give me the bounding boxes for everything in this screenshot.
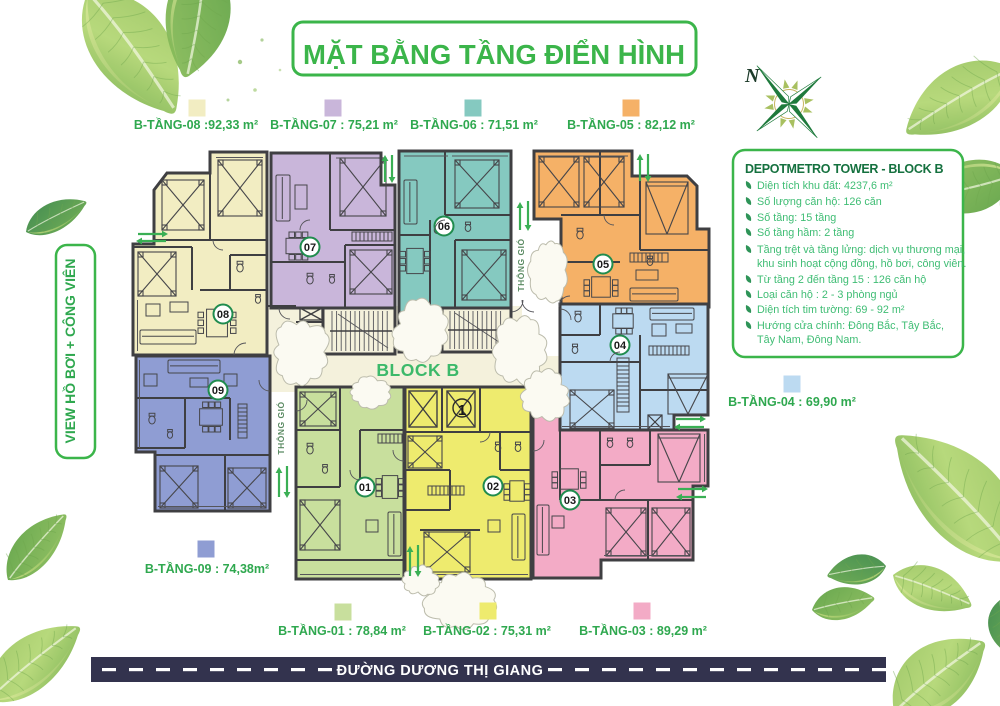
svg-text:DEPOTMETRO TOWER - BLOCK B: DEPOTMETRO TOWER - BLOCK B [745, 162, 943, 176]
svg-text:khu sinh hoạt cộng đồng, hồ bơ: khu sinh hoạt cộng đồng, hồ bơi, công vi… [757, 258, 966, 270]
svg-text:1: 1 [458, 402, 466, 419]
svg-text:B-TẦNG-08 :92,33 m²: B-TẦNG-08 :92,33 m² [134, 117, 258, 132]
svg-text:Tầng trệt và tầng lửng: dịch v: Tầng trệt và tầng lửng: dịch vụ thương m… [757, 244, 965, 256]
svg-text:B-TẦNG-04 : 69,90 m²: B-TẦNG-04 : 69,90 m² [728, 394, 856, 409]
svg-text:Diện tích khu đất: 4237,6 m²: Diện tích khu đất: 4237,6 m² [757, 180, 893, 192]
svg-text:B-TẦNG-05 : 82,12 m²: B-TẦNG-05 : 82,12 m² [567, 117, 695, 132]
svg-text:Từ tầng 2 đến tầng 15 : 126 că: Từ tầng 2 đến tầng 15 : 126 căn hộ [757, 274, 926, 286]
svg-text:02: 02 [487, 481, 499, 493]
svg-text:Hướng cửa chính: Đông Bắc, Tây: Hướng cửa chính: Đông Bắc, Tây Bắc, [757, 319, 944, 332]
svg-text:09: 09 [212, 385, 224, 397]
svg-text:04: 04 [614, 340, 627, 352]
svg-text:01: 01 [359, 482, 371, 494]
svg-text:07: 07 [304, 242, 316, 254]
svg-text:THÔNG GIÓ: THÔNG GIÓ [515, 238, 526, 291]
svg-text:BLOCK B: BLOCK B [376, 360, 459, 380]
svg-text:Tây Nam, Đông Nam.: Tây Nam, Đông Nam. [757, 334, 861, 346]
svg-text:Diện tích tim tường: 69 - 92 m: Diện tích tim tường: 69 - 92 m² [757, 304, 905, 316]
svg-text:MẶT BẰNG TẦNG ĐIỂN HÌNH: MẶT BẰNG TẦNG ĐIỂN HÌNH [303, 39, 685, 70]
svg-text:B-TẦNG-02 : 75,31 m²: B-TẦNG-02 : 75,31 m² [423, 623, 551, 638]
svg-text:Số tầng hầm: 2 tầng: Số tầng hầm: 2 tầng [757, 227, 854, 239]
svg-text:VIEW HỒ BƠI + CÔNG VIÊN: VIEW HỒ BƠI + CÔNG VIÊN [61, 258, 78, 443]
svg-text:03: 03 [564, 495, 576, 507]
svg-text:B-TẦNG-06 : 71,51 m²: B-TẦNG-06 : 71,51 m² [410, 117, 538, 132]
svg-text:06: 06 [438, 221, 450, 233]
svg-text:B-TẦNG-07 : 75,21 m²: B-TẦNG-07 : 75,21 m² [270, 117, 398, 132]
svg-text:THÔNG GIÓ: THÔNG GIÓ [275, 401, 286, 454]
svg-text:ĐƯỜNG DƯƠNG THỊ GIANG: ĐƯỜNG DƯƠNG THỊ GIANG [337, 661, 544, 679]
svg-text:Số tầng: 15 tầng: Số tầng: 15 tầng [757, 212, 836, 224]
svg-text:Loại căn hộ : 2 - 3 phòng ngủ: Loại căn hộ : 2 - 3 phòng ngủ [757, 289, 897, 301]
svg-text:N: N [744, 65, 761, 87]
svg-text:08: 08 [217, 309, 229, 321]
svg-text:B-TẦNG-01 : 78,84 m²: B-TẦNG-01 : 78,84 m² [278, 623, 406, 638]
svg-text:B-TẦNG-09 : 74,38m²: B-TẦNG-09 : 74,38m² [145, 561, 269, 576]
svg-text:B-TẦNG-03 : 89,29 m²: B-TẦNG-03 : 89,29 m² [579, 623, 707, 638]
svg-text:Số lượng căn hộ: 126 căn: Số lượng căn hộ: 126 căn [757, 196, 882, 208]
svg-text:05: 05 [597, 259, 609, 271]
